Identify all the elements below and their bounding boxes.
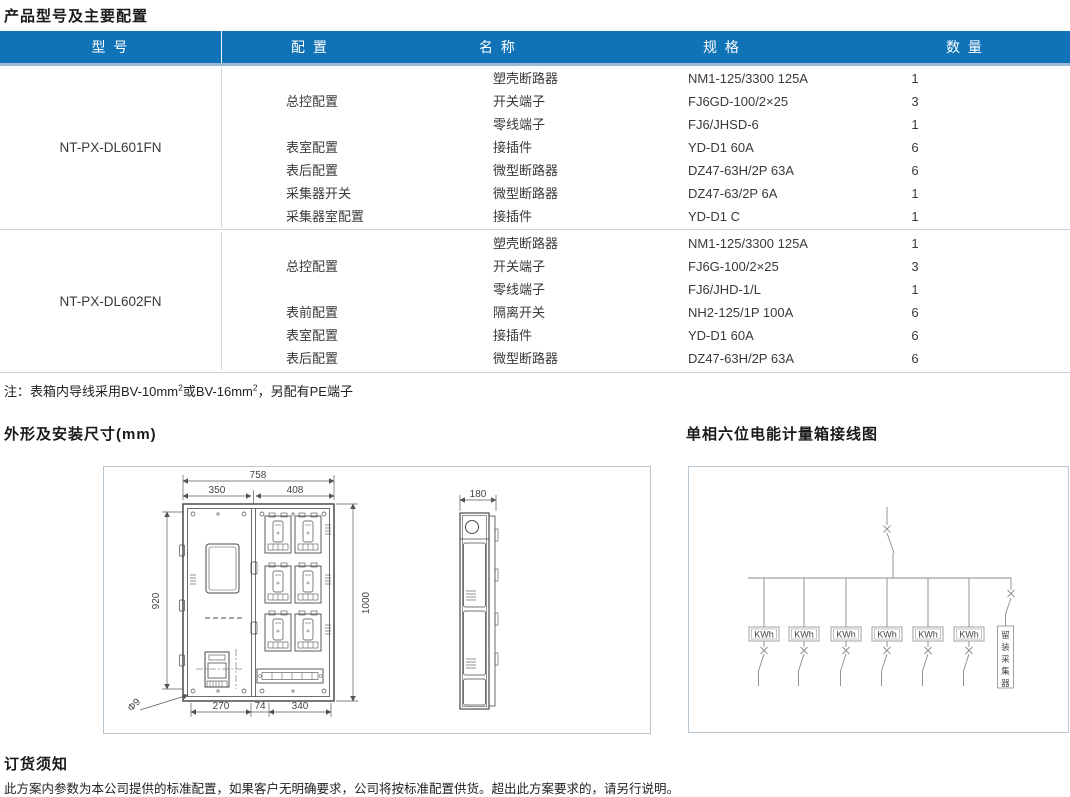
wiring-section-title: 单相六位电能计量箱接线图: [686, 423, 878, 444]
item-spec: YD-D1 60A: [667, 324, 850, 347]
item-spec: YD-D1 C: [667, 205, 850, 228]
dim-bottom-mid: 74: [254, 701, 266, 712]
item-spec: DZ47-63/2P 6A: [667, 182, 850, 205]
item-name: 开关端子: [445, 90, 667, 113]
item-qty: 6: [850, 301, 1070, 324]
item-spec: YD-D1 60A: [667, 136, 850, 159]
wiring-diagram: KWh KWh KWh KWh KWh KWh 留 装 采 集 器: [689, 467, 1068, 732]
order-notice-text: 此方案内参数为本公司提供的标准配置，如果客户无明确要求，公司将按标准配置供货。超…: [4, 778, 679, 797]
item-name: 接插件: [445, 136, 667, 159]
item-qty: 1: [850, 232, 1070, 255]
page-title: 产品型号及主要配置: [4, 5, 148, 26]
item-qty: 1: [850, 278, 1070, 301]
item-spec: FJ6/JHSD-6: [667, 113, 850, 136]
item-spec: FJ6GD-100/2×25: [667, 90, 850, 113]
table-header-row: 型 号 配 置 名 称 规 格 数 量: [0, 31, 1070, 66]
item-spec: NM1-125/3300 125A: [667, 232, 850, 255]
config-label: 表室配置: [222, 324, 445, 347]
note-text: ，另配有PE端子: [258, 384, 353, 399]
collector-label-char: 集: [1001, 666, 1010, 676]
item-name: 零线端子: [445, 278, 667, 301]
item-qty: 1: [850, 182, 1070, 205]
item-spec: FJ6/JHD-1/L: [667, 278, 850, 301]
item-qty: 3: [850, 90, 1070, 113]
item-qty: 1: [850, 113, 1070, 136]
dimensions-section-title: 外形及安装尺寸(mm): [4, 423, 157, 444]
item-name: 开关端子: [445, 255, 667, 278]
item-name: 塑壳断路器: [445, 232, 667, 255]
item-name: 微型断路器: [445, 159, 667, 182]
collector-label-char: 器: [1001, 678, 1010, 688]
order-section-title: 订货须知: [4, 753, 68, 774]
item-spec: FJ6G-100/2×25: [667, 255, 850, 278]
item-name: 接插件: [445, 324, 667, 347]
item-qty: 1: [850, 205, 1070, 228]
config-label: 表前配置: [222, 301, 445, 324]
dim-left-width: 350: [209, 485, 226, 496]
meter-label: KWh: [794, 630, 814, 640]
header-name: 名 称: [445, 31, 667, 63]
model-name: NT-PX-DL601FN: [0, 67, 222, 228]
item-spec: DZ47-63H/2P 63A: [667, 347, 850, 370]
wiring-diagram-panel: KWh KWh KWh KWh KWh KWh 留 装 采 集 器: [688, 466, 1069, 733]
item-name: 隔离开关: [445, 301, 667, 324]
item-qty: 6: [850, 136, 1070, 159]
dim-mount-height: 920: [151, 592, 162, 609]
dimension-drawing-panel: 758 350 408 920 1000 270 74 340 Φ9 180: [103, 466, 651, 734]
product-spec-page: 产品型号及主要配置 型 号 配 置 名 称 规 格 数 量 NT-PX-DL60…: [0, 0, 1070, 797]
config-label: 总控配置: [222, 232, 445, 301]
item-name: 塑壳断路器: [445, 67, 667, 90]
item-qty: 3: [850, 255, 1070, 278]
config-label: 采集器室配置: [222, 205, 445, 228]
item-qty: 6: [850, 159, 1070, 182]
meter-label: KWh: [877, 630, 897, 640]
wire-note: 注：表箱内导线采用BV-10mm2或BV-16mm2，另配有PE端子: [4, 381, 353, 400]
model-name: NT-PX-DL602FN: [0, 232, 222, 370]
collector-label-char: 采: [1001, 654, 1010, 664]
collector-label-char: 留: [1001, 630, 1010, 640]
model-group-2: NT-PX-DL602FN 总控配置 表前配置 表室配置 表后配置 塑壳断路器 …: [0, 230, 1070, 373]
item-name: 零线端子: [445, 113, 667, 136]
item-name: 微型断路器: [445, 347, 667, 370]
config-label: 表后配置: [222, 159, 445, 182]
dim-hole-diameter: Φ9: [126, 696, 144, 714]
note-text: 或BV-16mm: [183, 384, 253, 399]
item-name: 微型断路器: [445, 182, 667, 205]
dim-bottom-left: 270: [213, 701, 230, 712]
collector-label-char: 装: [1001, 642, 1010, 652]
header-model: 型 号: [0, 31, 222, 63]
dim-total-width: 758: [250, 470, 267, 481]
item-qty: 6: [850, 347, 1070, 370]
header-config: 配 置: [222, 31, 445, 63]
meter-label: KWh: [918, 630, 938, 640]
item-spec: DZ47-63H/2P 63A: [667, 159, 850, 182]
note-text: 注：表箱内导线采用BV-10mm: [4, 384, 178, 399]
item-spec: NH2-125/1P 100A: [667, 301, 850, 324]
config-label: 表后配置: [222, 347, 445, 370]
model-group-1: NT-PX-DL601FN 总控配置 表室配置 表后配置 采集器开关 采集器室配…: [0, 66, 1070, 230]
item-spec: NM1-125/3300 125A: [667, 67, 850, 90]
header-qty: 数 量: [850, 31, 1070, 63]
config-label: 表室配置: [222, 136, 445, 159]
dim-box-height: 1000: [361, 591, 372, 614]
dim-side-depth: 180: [470, 489, 487, 500]
config-label: 采集器开关: [222, 182, 445, 205]
dim-right-width: 408: [287, 485, 304, 496]
meter-label: KWh: [959, 630, 979, 640]
meter-label: KWh: [836, 630, 856, 640]
item-qty: 6: [850, 324, 1070, 347]
spec-table: 型 号 配 置 名 称 规 格 数 量 NT-PX-DL601FN 总控配置 表…: [0, 31, 1070, 373]
dimension-drawing: 758 350 408 920 1000 270 74 340 Φ9 180: [104, 467, 650, 733]
header-spec: 规 格: [667, 31, 850, 63]
item-name: 接插件: [445, 205, 667, 228]
item-qty: 1: [850, 67, 1070, 90]
config-label: 总控配置: [222, 67, 445, 136]
meter-label: KWh: [754, 630, 774, 640]
dim-bottom-right: 340: [292, 701, 309, 712]
